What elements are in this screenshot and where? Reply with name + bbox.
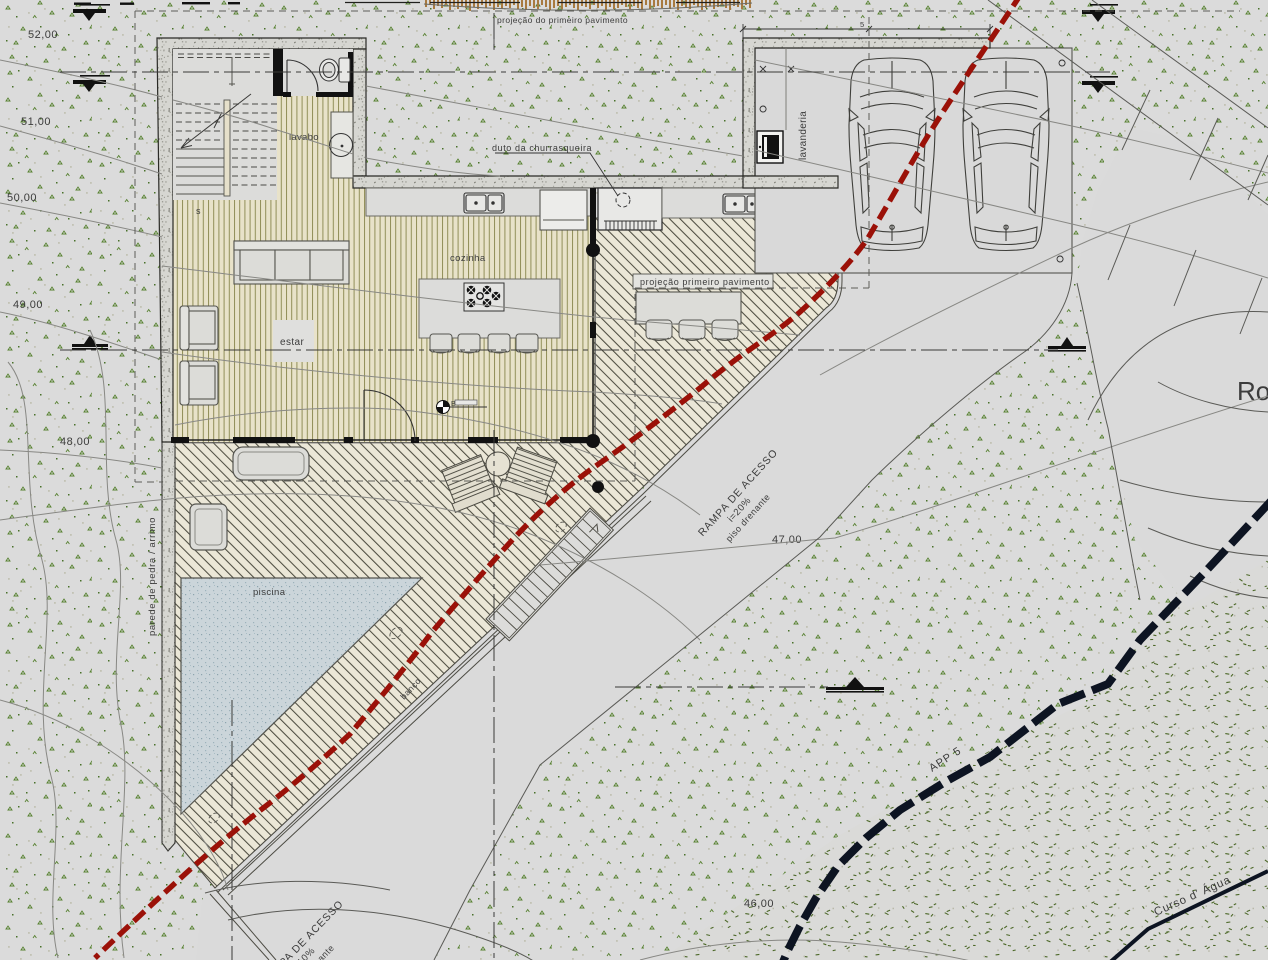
svg-text:projeção do primeiro pavime: projeção do primeiro pavimento bbox=[497, 15, 628, 25]
svg-text:s: s bbox=[196, 206, 201, 216]
svg-text:51,00: 51,00 bbox=[21, 116, 51, 128]
svg-text:duto da churrasqueira: duto da churrasqueira bbox=[492, 143, 592, 153]
svg-text:52,00: 52,00 bbox=[28, 29, 58, 41]
svg-text:projeção primeiro pavimento: projeção primeiro pavimento bbox=[640, 277, 770, 287]
svg-text:Rod: Rod bbox=[1237, 376, 1268, 406]
svg-text:lavanderia: lavanderia bbox=[798, 111, 809, 160]
svg-text:48,00: 48,00 bbox=[60, 436, 90, 448]
svg-text:B: B bbox=[451, 401, 456, 408]
svg-text:5: 5 bbox=[860, 20, 864, 29]
svg-text:parede de pedra / arrimo: parede de pedra / arrimo bbox=[147, 517, 158, 636]
svg-text:49,00: 49,00 bbox=[13, 299, 43, 311]
svg-text:47,00: 47,00 bbox=[772, 534, 802, 546]
svg-text:46,00: 46,00 bbox=[744, 898, 774, 910]
svg-text:50,00: 50,00 bbox=[7, 192, 37, 204]
svg-text:cozinha: cozinha bbox=[450, 253, 486, 264]
svg-text:estar: estar bbox=[280, 337, 305, 348]
svg-text:piscina: piscina bbox=[253, 587, 286, 598]
